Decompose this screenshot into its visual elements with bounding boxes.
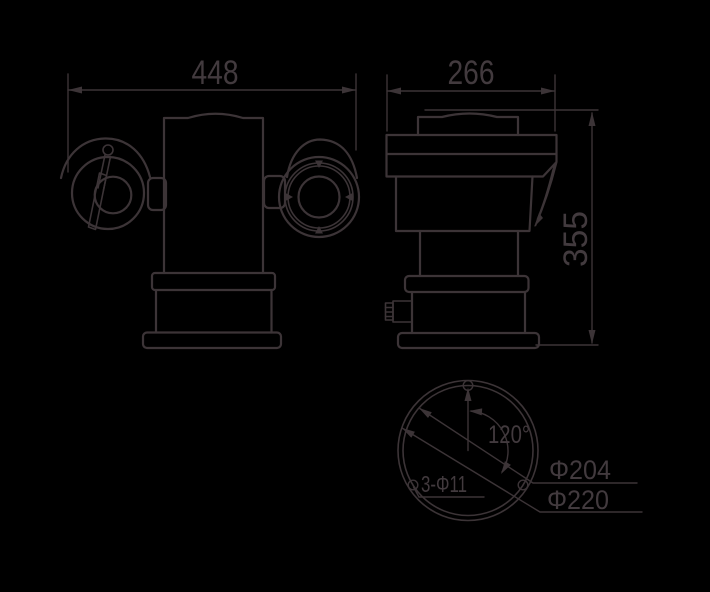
wiper-pivot [103, 145, 113, 155]
leader-arrowhead-204 [419, 408, 432, 418]
cable-gland [386, 301, 413, 322]
angle-annotation: 120° [469, 408, 530, 474]
arrowhead-left [68, 87, 82, 94]
arrowhead-right [342, 87, 356, 94]
right-illuminator [264, 140, 359, 238]
depth-dimension-label: 266 [448, 54, 495, 92]
width-dimension-label: 448 [192, 54, 239, 92]
ring-notch-right [345, 193, 353, 201]
side-pedestal-box [412, 292, 525, 333]
wiper-blade [89, 173, 107, 230]
angle-dimension-label: 120° [488, 421, 530, 449]
right-lamp-ring-inner [288, 166, 350, 228]
arrowhead-right [541, 88, 555, 95]
holes-callout: 3-Φ11 [414, 471, 485, 497]
outer-circle-label: Φ220 [547, 485, 609, 515]
dimension-355: 355 [425, 110, 598, 345]
drawing-canvas: 448 [0, 0, 710, 592]
side-wiper-tip [534, 213, 543, 227]
arrowhead-left [387, 88, 401, 95]
arc-arrowhead-upper [469, 408, 482, 415]
right-lamp-lens-circle [299, 177, 340, 218]
front-view: 448 [61, 54, 359, 348]
left-illuminator [61, 138, 166, 229]
side-base-plate [398, 333, 539, 348]
front-column [164, 114, 263, 273]
holes-label: 3-Φ11 [421, 471, 467, 497]
front-pedestal-box [156, 290, 272, 333]
technical-drawing: 448 [0, 0, 710, 592]
right-lamp-ring-outer [285, 163, 353, 231]
side-neck [420, 231, 518, 276]
side-flange [405, 276, 529, 292]
arrowhead-top [589, 112, 596, 126]
gland-ribs [386, 308, 394, 317]
gland-body [393, 301, 412, 322]
height-dimension-label: 355 [557, 211, 595, 267]
side-view: 266 355 [386, 54, 599, 348]
arrowhead-bottom [589, 330, 596, 344]
dimension-266: 266 [387, 54, 555, 131]
front-flange [152, 273, 275, 290]
side-main-housing [396, 177, 533, 232]
bottom-view: 120° Φ204 Φ220 3-Φ11 [398, 381, 642, 521]
side-top-cap [418, 114, 518, 136]
side-lower-band [387, 154, 557, 177]
right-lamp-visor [287, 140, 357, 179]
bolt-circle-label: Φ204 [549, 455, 611, 485]
side-upper-band [387, 135, 557, 154]
front-base-plate [143, 333, 281, 349]
ring-notch-left [286, 193, 294, 201]
